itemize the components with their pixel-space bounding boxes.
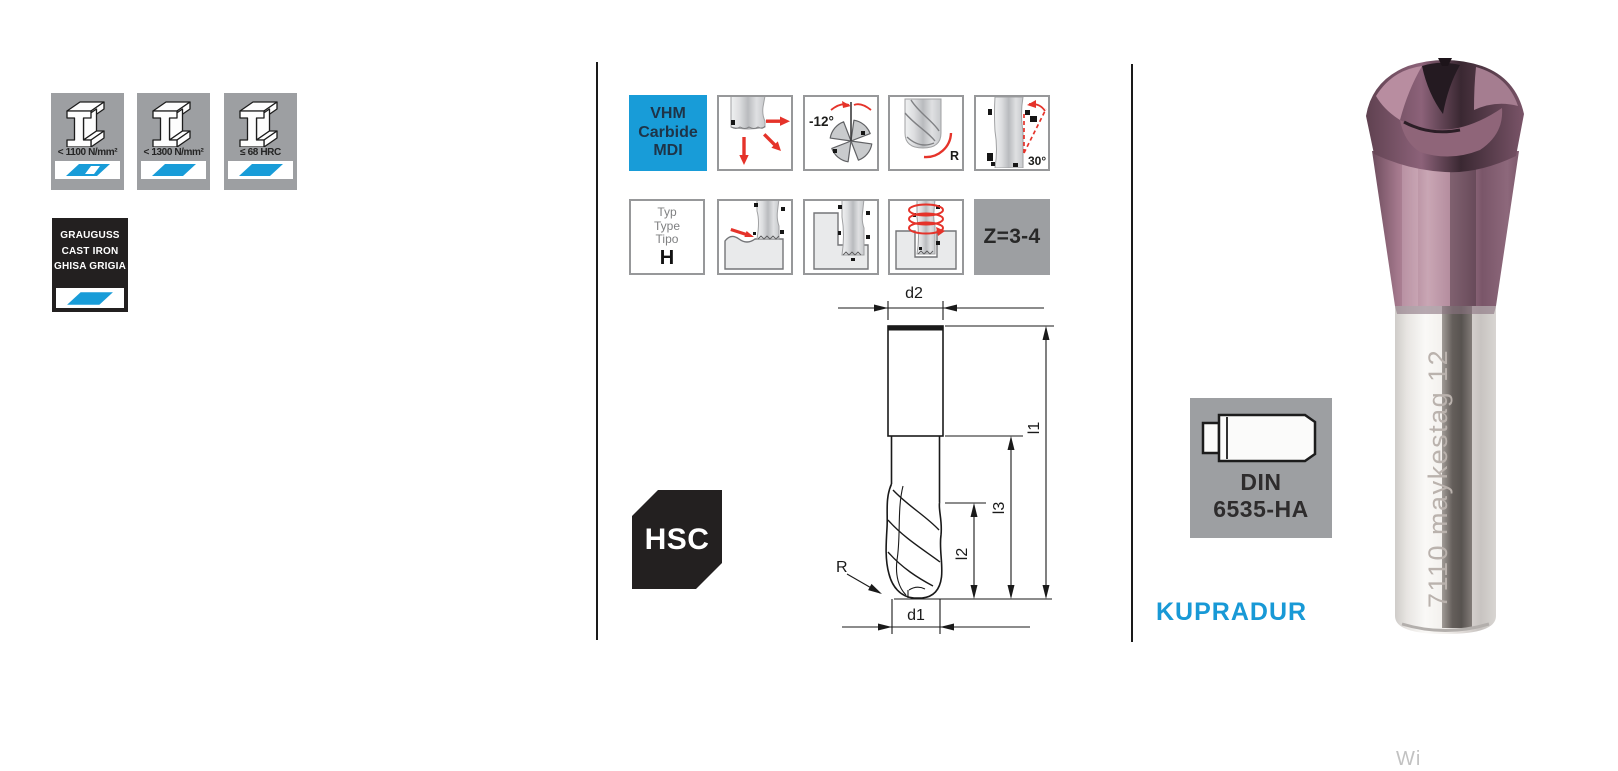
flute-count-label: Z=3-4 xyxy=(984,225,1041,249)
hardness-label: < 1100 N/mm² xyxy=(58,147,117,159)
i-beam-icon xyxy=(60,97,116,147)
parallelogram-icon xyxy=(150,163,198,177)
shoulder-milling-icon-box xyxy=(803,199,879,275)
type-label-it: Tipo xyxy=(656,233,679,247)
cast-iron-card: GRAUGUSS CAST IRON GHISA GRIGIA xyxy=(52,218,128,312)
machinability-indicator xyxy=(228,161,293,179)
type-card: Typ Type Tipo H xyxy=(629,199,705,275)
tool-photo: 7110 maykestag 12 xyxy=(1358,56,1533,648)
helical-interpolation-icon xyxy=(890,201,961,272)
type-label-de: Typ xyxy=(657,206,676,220)
flute-count-badge: Z=3-4 xyxy=(974,199,1050,275)
cast-iron-label-en: CAST IRON xyxy=(62,244,119,260)
parallelogram-icon xyxy=(65,291,115,306)
plunge-directions-icon-box xyxy=(717,95,793,171)
material-card: ≤ 68 HRC xyxy=(224,93,297,190)
vhm-carbide-badge: VHM Carbide MDI xyxy=(629,95,707,171)
material-card: < 1300 N/mm² xyxy=(137,93,210,190)
tool-marking-text: 7110 maykestag 12 xyxy=(1423,349,1453,608)
radius-callout-label: R xyxy=(836,559,848,576)
dim-label-l2: l2 xyxy=(954,548,971,561)
helix-angle-icon-box: -12° xyxy=(803,95,879,171)
negative-helix-angle-icon: -12° xyxy=(805,97,876,168)
cast-iron-label-it: GHISA GRIGIA xyxy=(54,259,126,275)
parallelogram-partial-icon xyxy=(64,163,112,177)
cast-iron-label-de: GRAUGUSS xyxy=(60,228,119,244)
chamfer-angle-icon-box: 30° xyxy=(974,95,1050,171)
shoulder-milling-icon xyxy=(805,201,876,272)
machinability-indicator xyxy=(56,288,124,308)
din-standard-line1: DIN xyxy=(1213,469,1309,496)
dim-label-l3: l3 xyxy=(991,502,1008,515)
i-beam-icon xyxy=(233,97,289,147)
helical-interpolation-icon-box xyxy=(888,199,964,275)
i-beam-icon xyxy=(146,97,202,147)
copy-milling-icon xyxy=(719,201,790,272)
partial-corner-text: Wi xyxy=(1396,748,1421,771)
hardness-label: ≤ 68 HRC xyxy=(240,147,281,159)
brand-kupradur: KUPRADUR xyxy=(1156,598,1307,627)
multi-direction-arrows-icon xyxy=(719,97,790,168)
vhm-line-2: Carbide xyxy=(638,124,698,143)
parallelogram-icon xyxy=(237,163,285,177)
technical-drawing: d2 d1 R l1 l3 l2 xyxy=(790,268,1060,643)
machinability-indicator xyxy=(141,161,206,179)
hardness-label: < 1300 N/mm² xyxy=(144,147,204,159)
copy-milling-icon-box xyxy=(717,199,793,275)
vhm-line-1: VHM xyxy=(650,105,686,124)
dim-label-d2: d2 xyxy=(905,285,923,302)
helix-angle-label: -12° xyxy=(809,114,834,129)
divider-right xyxy=(1131,64,1133,642)
hsc-badge: HSC xyxy=(632,490,722,589)
din-standard-line2: 6535-HA xyxy=(1213,496,1309,523)
type-label-en: Type xyxy=(654,220,680,234)
din-shank-icon xyxy=(1197,410,1325,466)
material-card: < 1100 N/mm² xyxy=(51,93,124,190)
hsc-label: HSC xyxy=(645,523,710,557)
type-value: H xyxy=(660,248,674,268)
vhm-line-3: MDI xyxy=(653,142,682,161)
angle-30-label: 30° xyxy=(1028,154,1046,168)
din-shank-card: DIN 6535-HA xyxy=(1190,398,1332,538)
divider-left xyxy=(596,62,598,640)
corner-radius-icon-box: R xyxy=(888,95,964,171)
radius-label: R xyxy=(950,149,959,163)
machinability-indicator xyxy=(55,161,120,179)
dim-label-l1: l1 xyxy=(1026,422,1043,435)
corner-radius-icon: R xyxy=(890,97,961,168)
angle-30-icon: 30° xyxy=(976,97,1047,168)
dim-label-d1: d1 xyxy=(907,607,925,624)
